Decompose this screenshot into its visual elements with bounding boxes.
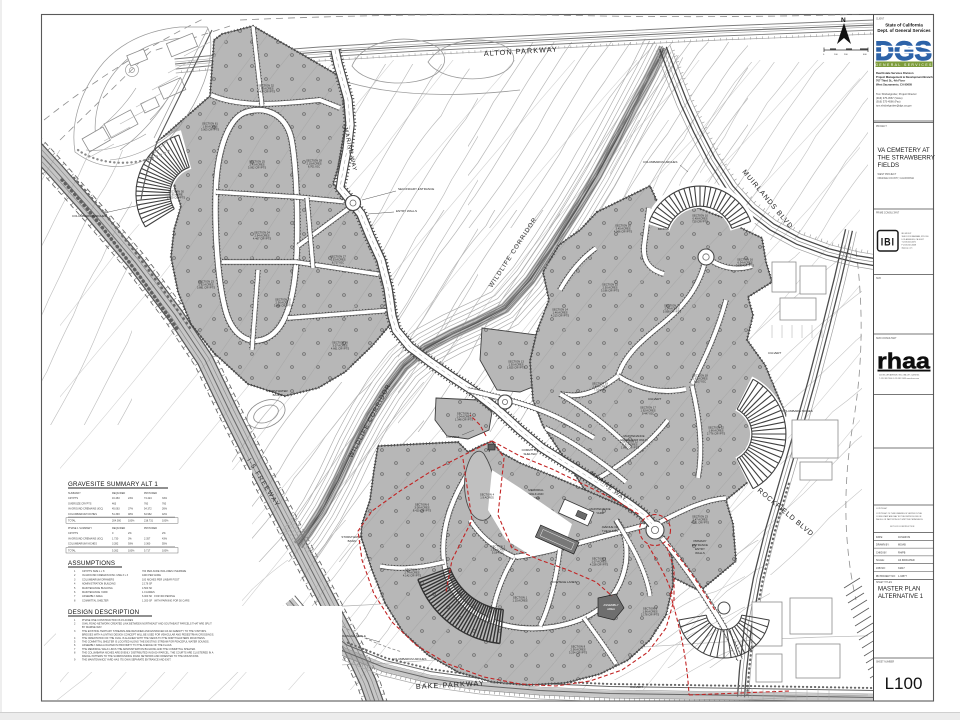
svg-text:37%: 37% [128,508,134,511]
svg-text:720 CRYPTS: 720 CRYPTS [692,220,708,224]
svg-text:8.107 IGC: 8.107 IGC [694,380,706,384]
svg-text:43%: 43% [162,537,168,540]
svg-text:F (213) 543-6408: F (213) 543-6408 [902,245,917,247]
svg-text:VA CEMETERY AT: VA CEMETERY AT [878,147,930,154]
svg-text:64.962: 64.962 [144,513,152,516]
svg-text:1.730: 1.730 [112,537,119,540]
svg-text:RH/PB: RH/PB [898,551,906,554]
svg-text:ALTERNATIVE 1: ALTERNATIVE 1 [878,594,924,600]
svg-text:760: 760 [162,502,167,505]
svg-text:93%: 93% [128,543,134,546]
svg-text:1-34577: 1-34577 [898,575,907,578]
svg-text:4400 PER ACRE: 4400 PER ACRE [142,574,161,577]
svg-text:CORTEGE LANES: CORTEGE LANES [552,580,577,584]
svg-text:PROJECT: PROJECT [876,126,887,128]
svg-text:PHASE 1 SUMMARY: PHASE 1 SUMMARY [68,527,92,530]
svg-text:SCALE:: SCALE: [876,559,885,562]
svg-text:6.717 IGC: 6.717 IGC [332,261,344,265]
svg-text:RADIAL PATTERN TO THE SURROUND: RADIAL PATTERN TO THE SURROUNDING ROAD N… [82,655,199,658]
svg-text:THE FLAGS: THE FLAGS [602,529,618,533]
svg-text:Tom Shickelgruber, Project Dir: Tom Shickelgruber, Project Director [876,92,917,96]
svg-text:ADMINISTRATION BUILDING: ADMINISTRATION BUILDING [82,583,116,586]
svg-text:34%: 34% [162,497,168,500]
svg-text:THE COMMITTAL SHELTER IS LOCAT: THE COMMITTAL SHELTER IS LOCATED ALONG T… [82,641,210,644]
svg-text:GENERAL SERVICES: GENERAL SERVICES [875,63,933,67]
svg-text:N: N [841,17,846,24]
svg-text:6.409 CRYPTS: 6.409 CRYPTS [257,90,276,94]
svg-text:2.178 CRYPTS: 2.178 CRYPTS [641,613,660,617]
svg-text:L100: L100 [885,674,923,693]
svg-text:ASSUMPTIONS: ASSUMPTIONS [68,560,115,567]
svg-text:AS INDICATED: AS INDICATED [898,559,915,562]
svg-text:16.463: 16.463 [112,497,120,500]
svg-text:1.200 SF WITH PARKING FOR 50: 1.200 SF WITH PARKING FOR 50 CARS [142,599,190,602]
svg-text:ASSEMBLY AREA: ASSEMBLY AREA [82,595,103,598]
svg-text:204.000: 204.000 [112,520,122,523]
svg-text:CLIENT: CLIENT [876,19,885,21]
svg-text:COLUMBARIUM NICHES: COLUMBARIUM NICHES [68,543,97,546]
svg-text:700 PER ACRE INCLUDES OVERSIZE: 700 PER ACRE INCLUDES OVERSIZE [142,570,187,573]
svg-text:TOTAL: TOTAL [68,520,76,523]
svg-text:THE STRAWBERRY: THE STRAWBERRY [878,155,935,162]
svg-text:45.063: 45.063 [112,508,120,511]
svg-text:CRYPTS: CRYPTS [68,532,78,535]
svg-text:3.282: 3.282 [112,543,119,546]
svg-text:CULVERT: CULVERT [768,351,781,355]
svg-text:SHEET TITLES: SHEET TITLES [876,582,892,584]
svg-text:CRYPTS SIZE L x 8: CRYPTS SIZE L x 8 [82,570,105,573]
svg-text:GRAVESITE SUMMARY ALT 1: GRAVESITE SUMMARY ALT 1 [68,481,158,488]
svg-text:PHASE ONE CONSTRUCTION IS 15 A: PHASE ONE CONSTRUCTION IS 15 ACRES [82,619,133,622]
svg-text:5.058 CRYPTS: 5.058 CRYPTS [663,310,682,314]
svg-text:T 415 383 7900 F 415 383 1433: T 415 383 7900 F 415 383 1433 www.rhaa.c… [879,377,919,380]
svg-text:COLUMBARIUM NICHES: COLUMBARIUM NICHES [68,513,97,516]
svg-text:5.717: 5.717 [144,549,151,552]
svg-text:8.420 CRYPTS: 8.420 CRYPTS [413,509,432,513]
svg-text:MASTER PLAN: MASTER PLAN [878,587,920,593]
svg-text:COLUMBARIUM ARCHES: COLUMBARIUM ARCHES [392,657,426,661]
svg-text:48%: 48% [128,513,134,516]
svg-text:24%: 24% [128,497,134,500]
svg-text:WHOLE OR PART WITHOUT WRITTEN: WHOLE OR PART WITHOUT WRITTEN PERMISSION… [876,518,923,521]
svg-text:COLUMBARIUM ARCHES: COLUMBARIUM ARCHES [643,160,677,164]
svg-text:(916) 375-4567 (Voice): (916) 375-4567 (Voice) [876,96,903,100]
svg-text:BY MARINE WAY.: BY MARINE WAY. [82,626,102,629]
svg-text:CRYPTS: CRYPTS [68,497,78,500]
svg-text:ENTRY WALLS: ENTRY WALLS [396,209,417,213]
svg-text:2.176 SF: 2.176 SF [142,583,153,586]
svg-text:100 NICHES PER LINEAR FOOT: 100 NICHES PER LINEAR FOOT [142,578,180,581]
svg-text:COLUMBARIUM DRAWERS: COLUMBARIUM DRAWERS [82,578,114,581]
svg-text:COPYRIGHT: COPYRIGHT [876,508,888,510]
svg-text:CULVERT: CULVERT [648,397,661,401]
svg-text:BRIDGES WITH A LINTING DESIGN: BRIDGES WITH A LINTING DESIGN CONCEPT WI… [82,633,214,636]
svg-text:SECONDARY ENTRANCE: SECONDARY ENTRANCE [398,187,434,191]
svg-text:COMMITTAL SHELTER: COMMITTAL SHELTER [82,599,109,602]
svg-text:26%: 26% [162,508,168,511]
svg-text:CULVERT: CULVERT [630,685,643,689]
svg-text:4.661 CRYPTS: 4.661 CRYPTS [331,347,350,351]
svg-text:ibigroup.com: ibigroup.com [902,247,913,250]
svg-text:3.881 CRYPTS: 3.881 CRYPTS [197,286,216,290]
svg-text:PROVIDED: PROVIDED [144,527,157,530]
svg-text:1.348 CRYPTS: 1.348 CRYPTS [455,418,474,422]
svg-text:1.15 ACRES: 1.15 ACRES [512,599,527,603]
svg-text:4.467 CRYPTS: 4.467 CRYPTS [253,237,272,241]
svg-text:CULVERT: CULVERT [446,435,459,439]
svg-text:REQUIRED: REQUIRED [112,492,125,495]
svg-text:West Sacramento, CA 95605: West Sacramento, CA 95605 [876,82,913,86]
svg-text:SHEET NUMBER: SHEET NUMBER [876,662,895,664]
svg-text:3.234 CRYPTS: 3.234 CRYPTS [569,651,588,655]
svg-text:3.360: 3.360 [144,543,151,546]
svg-text:Real Estate Services Division: Real Estate Services Division [876,71,914,75]
svg-text:DRAINAGE SWALE: DRAINAGE SWALE [340,634,366,638]
svg-text:SUB CONSULTANT: SUB CONSULTANT [876,337,897,340]
svg-text:18401 VON KARMAN, STE 300: 18401 VON KARMAN, STE 300 [902,235,929,238]
svg-text:1.0 ACRES: 1.0 ACRES [142,591,155,594]
svg-text:42%: 42% [162,513,168,516]
svg-text:100%: 100% [162,549,169,552]
svg-text:463: 463 [112,502,117,505]
svg-text:5.184 IGC: 5.184 IGC [492,551,504,555]
svg-text:COLUMBARIUM ARCHES: COLUMBARIUM ARCHES [72,214,106,218]
svg-text:74.424: 74.424 [144,497,152,500]
svg-text:100%: 100% [128,549,135,552]
svg-text:7.104 IGC: 7.104 IGC [594,388,606,392]
svg-text:NOT FOR CONSTRUCTION: NOT FOR CONSTRUCTION [890,526,915,528]
svg-text:TOTAL: TOTAL [68,549,76,552]
svg-text:3.092 CRYPTS: 3.092 CRYPTS [248,166,267,170]
svg-text:IBI GROUP: IBI GROUP [902,233,913,235]
svg-text:PRIME CONSULTANT: PRIME CONSULTANT [876,212,900,215]
svg-text:5.262: 5.262 [112,549,119,552]
svg-text:THE EXISTING TERTIARY STREAMS: THE EXISTING TERTIARY STREAMS ARE RETAIN… [82,630,207,633]
svg-text:IN-GROUND CREMAINS (IGC): IN-GROUND CREMAINS (IGC) [68,537,103,540]
svg-text:THE COLUMBARIA NICHES ARE EVEN: THE COLUMBARIA NICHES ARE EVENLY DISTRIB… [82,651,214,654]
svg-text:5.873 CRYPTS: 5.873 CRYPTS [736,264,755,268]
svg-text:3.066 CRYPTS: 3.066 CRYPTS [274,304,293,308]
svg-text:SUB: SUB [876,278,881,280]
svg-text:ORANGE COUNTY, CALIFORNIA: ORANGE COUNTY, CALIFORNIA [878,177,915,180]
svg-text:DESIGN DESCRIPTION: DESIGN DESCRIPTION [68,609,139,616]
svg-text:JOB NO:: JOB NO: [876,567,886,570]
svg-text:4.228 CRYPTS: 4.228 CRYPTS [590,563,609,567]
svg-text:REQUIRED: REQUIRED [112,527,125,530]
svg-text:54.372: 54.372 [144,508,152,511]
svg-text:MAINTENANCE YARD: MAINTENANCE YARD [82,591,108,594]
svg-text:100%: 100% [128,520,135,523]
svg-text:YARD: YARD [596,511,604,515]
svg-text:MAINTENANCE BUILDING: MAINTENANCE BUILDING [82,587,113,590]
svg-text:6.000 SF FOR 300 PEOPLE: 6.000 SF FOR 300 PEOPLE [142,595,175,598]
svg-text:3.003 CRYPTS: 3.003 CRYPTS [201,128,220,132]
svg-text:2.357: 2.357 [144,537,151,540]
svg-text:IN-GROUND CREMAINS (IGC): IN-GROUND CREMAINS (IGC) [68,508,103,511]
svg-text:4.213 CRYPTS: 4.213 CRYPTS [551,314,570,318]
svg-text:BASIN: BASIN [273,393,282,397]
svg-text:1.897 CRYPTS: 1.897 CRYPTS [621,446,640,450]
svg-text:IBI: IBI [881,237,895,249]
svg-text:04 MAR 09: 04 MAR 09 [898,536,911,539]
svg-text:55%: 55% [162,543,168,546]
svg-text:1.825 CRYPTS: 1.825 CRYPTS [507,366,526,370]
svg-text:COPYRIGHT OF THIS DRAWING IS V: COPYRIGHT OF THIS DRAWING IS VESTED IN T… [876,512,923,515]
svg-text:3.196 CRYPTS: 3.196 CRYPTS [601,289,620,293]
svg-text:SUMMARY: SUMMARY [68,492,81,495]
svg-text:(916) 375-4566 (Fax): (916) 375-4566 (Fax) [876,100,901,104]
svg-text:4.500 SF: 4.500 SF [142,587,153,590]
svg-text:2.776 CRYPTS: 2.776 CRYPTS [707,432,726,436]
svg-text:LOS ANGELES, CA 90017: LOS ANGELES, CA 90017 [902,238,925,241]
svg-text:225 MILLER AVENUE, MILL VALLEY: 225 MILLER AVENUE, MILL VALLEY, CA 94941 [879,374,919,377]
svg-text:9.447 IGC: 9.447 IGC [642,412,654,416]
svg-text:PROVIDED: PROVIDED [144,492,157,495]
svg-text:FIELDS: FIELDS [878,162,900,169]
svg-text:100%: 100% [162,520,169,523]
svg-text:tom.shickelgruber@dgs.ca.gov: tom.shickelgruber@dgs.ca.gov [876,103,912,107]
svg-text:DATE:: DATE: [876,536,883,539]
svg-text:4.966 CRYPTS: 4.966 CRYPTS [614,230,633,234]
svg-text:BRIDGE: BRIDGE [658,227,669,231]
svg-text:THE MEMORIAL WALK LINKS THE AD: THE MEMORIAL WALK LINKS THE ADMINISTRATI… [82,648,196,651]
svg-text:OVAL ROAD NETWORK CREATED LINK: OVAL ROAD NETWORK CREATED LINK BETWEEN N… [82,623,212,626]
svg-text:State of California: State of California [885,23,923,28]
svg-text:AREA: AREA [607,607,615,611]
svg-text:4.511 CRYPTS: 4.511 CRYPTS [691,521,709,525]
svg-text:4.142 CRYPTS: 4.142 CRYPTS [403,574,422,578]
svg-text:CHKD BY:: CHKD BY: [876,551,887,554]
svg-text:DRAWN BY:: DRAWN BY: [876,544,890,547]
svg-text:IN-GROUND CREMAIN DISC./USE 3: IN-GROUND CREMAIN DISC./USE 3 x 3 [82,574,129,577]
svg-text:ASSEMBLY AREA LOCATED IN PROXI: ASSEMBLY AREA LOCATED IN PROXIMITY TO TH… [82,644,172,647]
svg-text:707 Third St., 4th Floor: 707 Third St., 4th Floor [876,79,905,83]
svg-text:WALLS: WALLS [695,551,705,555]
svg-text:1.400 CRYPTS: 1.400 CRYPTS [167,196,186,200]
svg-text:THE ORIENTATION OF THE OVAL IS: THE ORIENTATION OF THE OVAL IS ALIGNED W… [82,637,206,640]
svg-text:218.731: 218.731 [144,520,154,523]
svg-text:Dept. of General Services: Dept. of General Services [877,28,931,33]
svg-text:Project Management & Developme: Project Management & Development Branch [876,75,933,79]
svg-text:COLUMBARIA NICHES: COLUMBARIA NICHES [782,409,813,413]
svg-text:IBI PROJECT NO:: IBI PROJECT NO: [876,575,896,578]
svg-text:T (213) 400-0071: T (213) 400-0071 [902,242,917,244]
svg-text:SHELTER: SHELTER [523,452,536,456]
svg-text:MO/AB: MO/AB [898,544,906,547]
svg-text:6.701 IGC: 6.701 IGC [308,165,320,169]
svg-text:THE MAINTENANCE YARD HAS ITS O: THE MAINTENANCE YARD HAS ITS OWN SEPARAT… [82,659,171,662]
svg-text:31647: 31647 [898,567,905,570]
svg-text:OVERSIZE CRYPTS: OVERSIZE CRYPTS [68,502,92,505]
svg-text:760: 760 [144,502,149,505]
svg-text:1.9 ACRES: 1.9 ACRES [480,496,494,500]
svg-text:WEST PROJECT: WEST PROJECT [878,173,897,176]
svg-text:51.393: 51.393 [112,513,120,516]
svg-text:CONSULTANT AND MAY NOT BE REPR: CONSULTANT AND MAY NOT BE REPRODUCED IN [876,515,922,518]
svg-text:BASIN: BASIN [348,539,357,543]
